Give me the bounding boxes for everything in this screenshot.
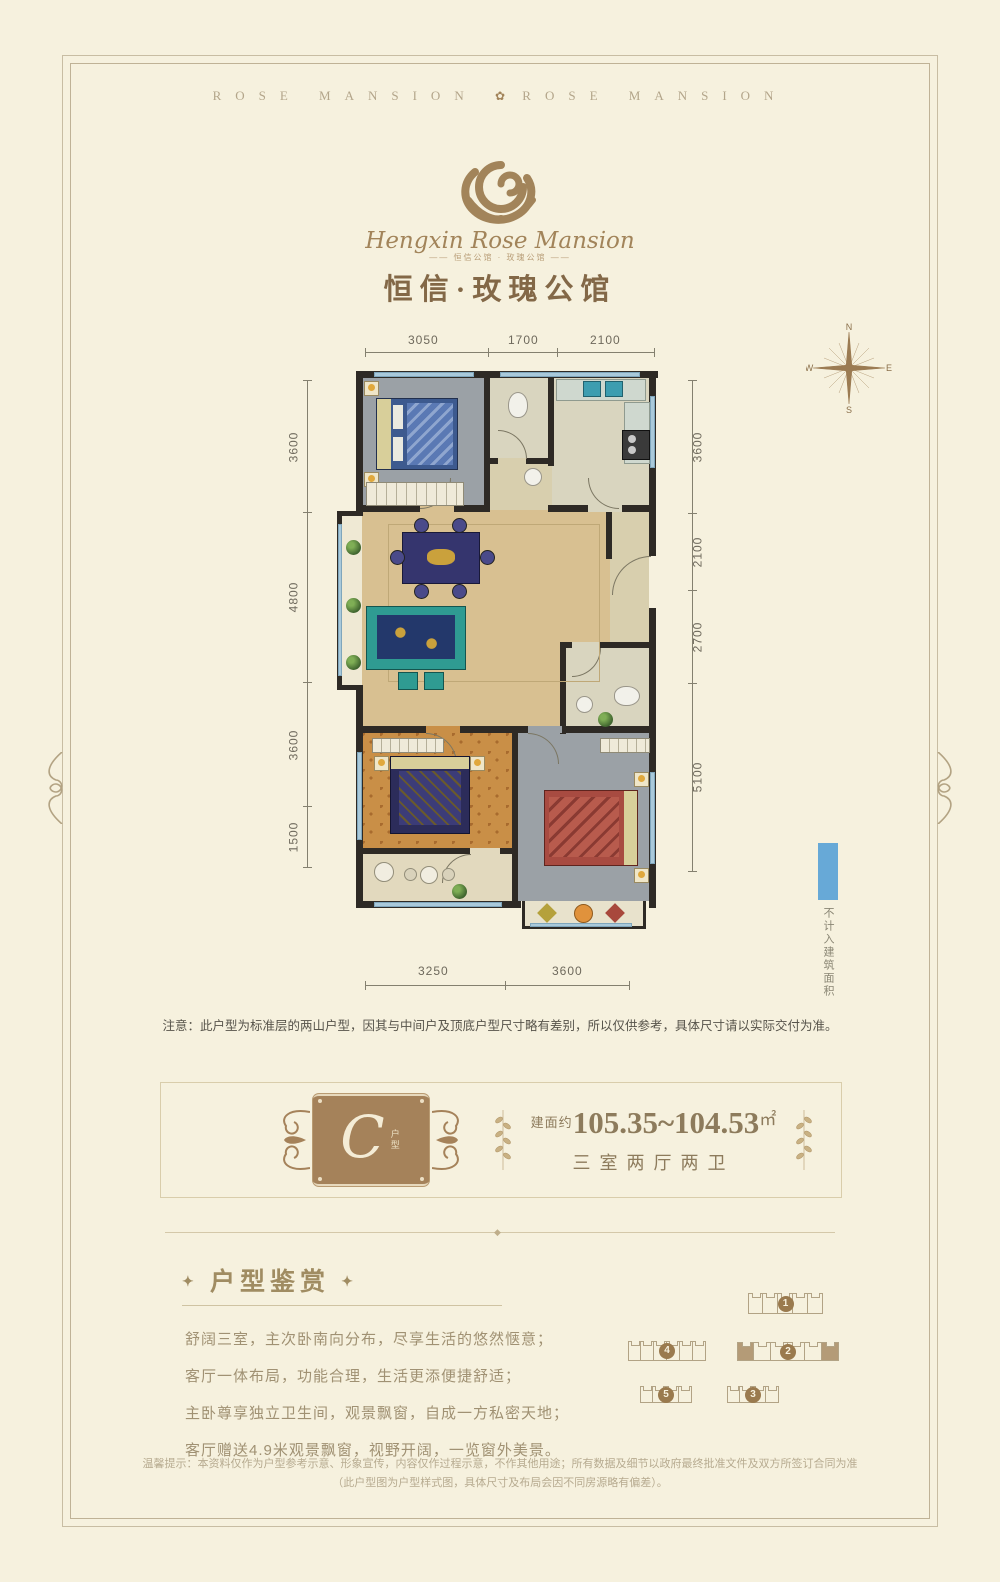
bed-headboard (624, 791, 637, 865)
bed-cover (549, 797, 619, 857)
dining-chair (452, 518, 467, 533)
balcony-table (420, 866, 438, 884)
bed-cover (399, 771, 461, 825)
balcony-chair (404, 868, 417, 881)
plan-note: 注意：此户型为标准层的两山户型，因其与中间户及顶底户型尺寸略有差别，所以仅供参考… (0, 1015, 1000, 1034)
dim-top-3: 2100 (590, 333, 621, 347)
bed-north (376, 398, 458, 470)
dim-line-bottom (365, 985, 630, 986)
dim-left-4: 1500 (286, 822, 300, 853)
dim-tick (303, 806, 312, 807)
legend-label: 不计入建筑面积 (820, 907, 836, 998)
dim-tick (303, 682, 312, 683)
wall (356, 726, 656, 733)
building-number-badge: 2 (780, 1344, 796, 1360)
dim-tick (488, 348, 489, 357)
unit-roof-notch (809, 1342, 818, 1347)
dim-tick (688, 513, 697, 514)
room-hallway (488, 460, 552, 510)
building-unit-cell (680, 1341, 693, 1361)
building-unit-cell (763, 1293, 778, 1314)
washbasin (524, 468, 542, 486)
building-number-badge: 5 (658, 1387, 674, 1403)
logo-tagline: —— 恒信公馆 · 玫瑰公馆 —— (0, 252, 1000, 263)
bay-decor (574, 904, 593, 923)
dim-bottom-2: 3600 (552, 964, 583, 978)
sofa-cushions (377, 615, 455, 659)
wall (512, 733, 518, 905)
table-centerpiece (427, 549, 455, 565)
divider-diamond-icon: ◆ (494, 1227, 501, 1238)
dim-tick (688, 590, 697, 591)
window (650, 396, 655, 468)
appreciation-line-1: 舒阔三室，主次卧南向分布，尽享生活的悠然惬意； (185, 1328, 625, 1349)
plant (452, 884, 467, 899)
unit-badge: C 户型 (313, 1094, 429, 1186)
wardrobe-southwest (372, 738, 444, 753)
unit-roof-notch (681, 1386, 690, 1391)
unit-roof-notch (826, 1342, 835, 1347)
dim-tick (688, 683, 697, 684)
bed-headboard (377, 399, 391, 469)
brand-text-left: ROSE MANSION (213, 88, 478, 103)
building-unit-cell (766, 1386, 779, 1403)
area-prefix: 建面约 (531, 1115, 573, 1130)
dim-right-2: 2100 (690, 537, 704, 568)
building-unit-cell (754, 1342, 771, 1361)
burner (628, 446, 636, 454)
wheat-ornament-left (493, 1108, 513, 1172)
dim-tick (303, 867, 312, 868)
balcony-dish (374, 862, 394, 882)
sofa (366, 606, 466, 670)
nightstand (374, 756, 389, 771)
header-brandline: ROSE MANSION ✿ ROSE MANSION (0, 88, 1000, 104)
stove (622, 430, 650, 460)
door-gap (426, 726, 460, 733)
rose-flower-icon: ✿ (495, 89, 505, 103)
bed-southwest (390, 756, 470, 834)
layout-text: 三室两厅两卫 (531, 1149, 777, 1175)
wall (548, 371, 554, 466)
appreciation-line-3: 主卧尊享独立卫生间，观景飘窗，自成一方私密天地； (185, 1402, 625, 1423)
window (500, 372, 640, 377)
unit-roof-notch (811, 1293, 820, 1298)
building-number-badge: 1 (778, 1296, 794, 1312)
dim-tick (365, 348, 366, 357)
building-unit-cell (748, 1293, 763, 1314)
dim-left-2: 4800 (286, 582, 300, 613)
building-unit-cell (808, 1293, 823, 1314)
logo-script-name: Hengxin Rose Mansion (0, 228, 1000, 254)
dim-tick (688, 380, 697, 381)
building-unit-cell (737, 1342, 754, 1361)
plant (598, 712, 613, 727)
compass-south: S (846, 405, 852, 414)
kitchen-sink (583, 381, 601, 397)
appreciation-line-2: 客厅一体布局，功能合理，生活更添便捷舒适； (185, 1365, 625, 1386)
nightstand (364, 381, 379, 396)
building-unit-cell (693, 1341, 706, 1361)
window (338, 524, 342, 676)
dim-line-left (307, 380, 308, 868)
plant (346, 540, 361, 555)
compass-icon: N S W E (806, 322, 892, 414)
window (530, 923, 632, 927)
unit-roof-notch (758, 1342, 767, 1347)
window (357, 752, 362, 840)
logo-title-cn: 恒信·玫瑰公馆 (0, 266, 1000, 308)
balcony-chair (442, 868, 455, 881)
disclaimer-line-2: （此户型图为户型样式图，具体尺寸及布局会因不同房源略有偏差）。 (0, 1474, 1000, 1490)
wardrobe-north (366, 482, 464, 506)
appreciation-title: ✦ 户型鉴赏 ✦ (182, 1262, 358, 1298)
unit-roof-notch (796, 1293, 805, 1298)
dim-left-1: 3600 (286, 432, 300, 463)
dim-top-2: 1700 (508, 333, 539, 347)
dining-table (402, 532, 480, 584)
compass-east: E (886, 363, 892, 373)
unit-word: 户型 (389, 1129, 402, 1151)
dim-right-4: 5100 (690, 762, 704, 793)
door-gap (470, 848, 500, 854)
unit-roof-notch (682, 1341, 691, 1346)
dining-chair (452, 584, 467, 599)
ottoman (424, 672, 444, 690)
unit-roof-notch (643, 1341, 652, 1346)
kitchen-sink (605, 381, 623, 397)
dining-chair (414, 518, 429, 533)
bed-cover (407, 403, 453, 465)
unit-roof-notch (643, 1386, 652, 1391)
nightstand (634, 868, 649, 883)
dining-chair (414, 584, 429, 599)
toilet-master (614, 686, 640, 706)
dining-chair (480, 550, 495, 565)
pillow (393, 405, 403, 429)
dim-top-1: 3050 (408, 333, 439, 347)
unit-roof-notch (730, 1386, 739, 1391)
unit-roof-notch (695, 1341, 704, 1346)
dim-left-3: 3600 (286, 730, 300, 761)
wall (606, 511, 612, 559)
dim-tick (654, 348, 655, 357)
wheat-ornament-right (794, 1108, 814, 1172)
appreciation-underline (182, 1305, 502, 1306)
dim-tick (557, 348, 558, 357)
window (650, 772, 655, 864)
appreciation-title-text: 户型鉴赏 (210, 1269, 330, 1296)
plant (346, 655, 361, 670)
star-icon: ✦ (182, 1275, 199, 1290)
washbasin-master (576, 696, 593, 713)
bed-headboard (391, 757, 469, 769)
compass-west: W (806, 363, 814, 373)
dim-right-1: 3600 (690, 432, 704, 463)
dim-tick (688, 871, 697, 872)
dim-tick (505, 981, 506, 990)
building-unit-cell (641, 1341, 654, 1361)
badge-scroll-right (432, 1104, 466, 1176)
unit-roof-notch (766, 1293, 775, 1298)
star-icon: ✦ (341, 1275, 358, 1290)
bed-master (544, 790, 638, 866)
dim-tick (303, 512, 312, 513)
rose-logo-icon (455, 148, 547, 226)
building-unit-cell (793, 1293, 808, 1314)
unit-roof-notch (752, 1293, 761, 1298)
wall (484, 371, 490, 512)
nightstand (470, 756, 485, 771)
disclaimer-line-1: 温馨提示：本资料仅作为户型参考示意、形象宣传，内容仅作过程示意，不作其他用途；所… (0, 1455, 1000, 1471)
building-unit-cell (822, 1342, 839, 1361)
burner (628, 435, 636, 443)
unit-roof-notch (768, 1386, 777, 1391)
wardrobe-master (600, 738, 650, 753)
frame-ornament-right (936, 752, 958, 824)
building-number-badge: 4 (659, 1343, 675, 1359)
area-line: 建面约105.35~104.53㎡ (531, 1105, 777, 1141)
ottoman (398, 672, 418, 690)
building-unit-cell (640, 1386, 653, 1403)
wall (356, 371, 363, 514)
dining-chair (390, 550, 405, 565)
building-unit-cell (679, 1386, 692, 1403)
area-unit: ㎡ (759, 1110, 776, 1129)
unit-roof-notch (742, 1342, 751, 1347)
frame-ornament-left (42, 752, 64, 824)
dim-tick (629, 981, 630, 990)
unit-letter: C (340, 1108, 384, 1166)
nightstand (634, 772, 649, 787)
unit-info-panel: C 户型 建面约105.35~104.53㎡ (160, 1082, 842, 1198)
badge-scroll-left (276, 1104, 310, 1176)
window (374, 372, 474, 377)
dim-right-3: 2700 (690, 622, 704, 653)
dim-bottom-1: 3250 (418, 964, 449, 978)
dim-tick (303, 380, 312, 381)
dim-tick (365, 981, 366, 990)
building-unit-cell (727, 1386, 740, 1403)
unit-badge-wrap: C 户型 (276, 1090, 466, 1190)
area-value: 105.35~104.53 (573, 1105, 760, 1140)
brand-text-right: ROSE MANSION (522, 88, 787, 103)
dim-line-top (365, 352, 655, 353)
pillow (393, 437, 403, 461)
window (374, 902, 502, 907)
compass-north: N (846, 322, 853, 332)
building-number-badge: 3 (745, 1387, 761, 1403)
toilet-north (508, 392, 528, 418)
area-block: 建面约105.35~104.53㎡ 三室两厅两卫 (466, 1105, 841, 1175)
building-unit-cell (805, 1342, 822, 1361)
kitchen-counter-top (556, 379, 646, 401)
legend-swatch-not-counted-area (818, 843, 838, 900)
building-unit-cell (628, 1341, 641, 1361)
door-gap (528, 726, 562, 733)
unit-roof-notch (631, 1341, 640, 1346)
plant (346, 598, 361, 613)
